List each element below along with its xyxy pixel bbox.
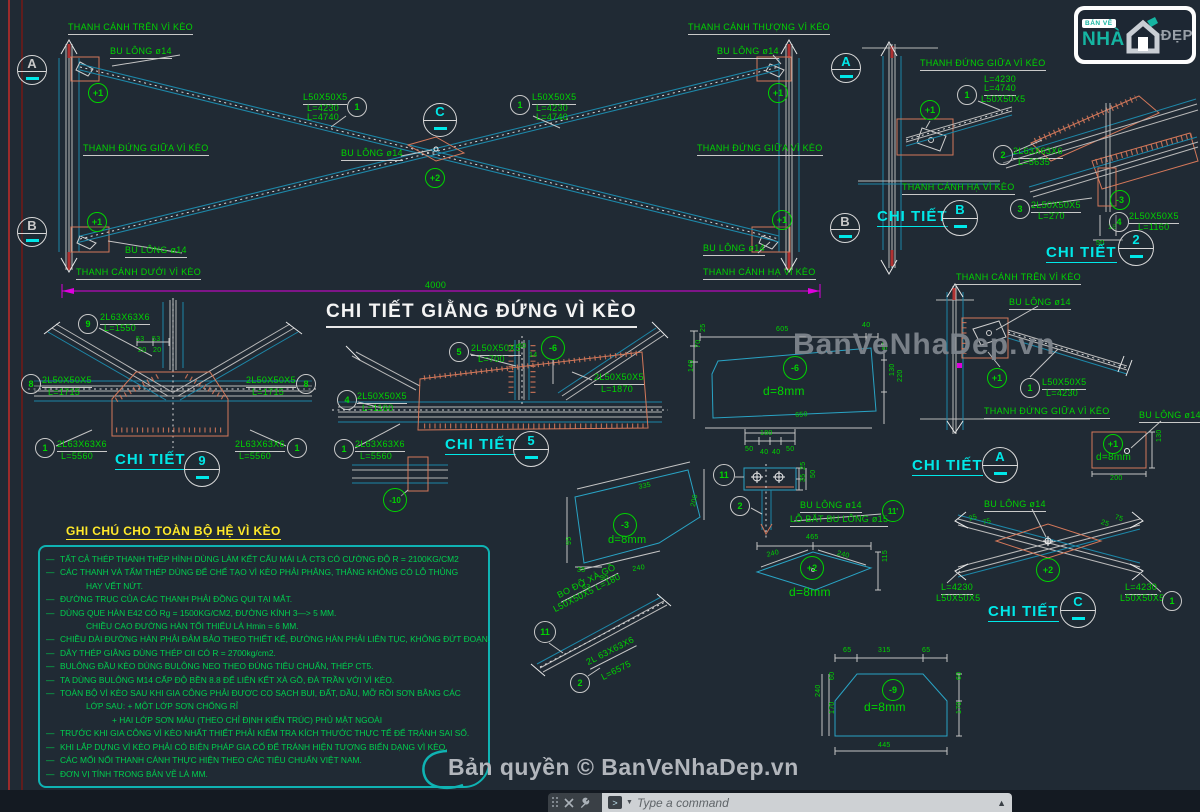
section-letter: B — [943, 201, 977, 218]
callout-bubble: -10 — [383, 488, 407, 512]
callout-bubble: C — [423, 103, 457, 137]
callout-bubble: 4 — [1109, 212, 1129, 232]
cad-label: d=8mm — [763, 385, 805, 397]
cad-label: L50X50X5 — [936, 594, 980, 603]
cad-label: 95 — [566, 537, 573, 545]
note-line: —TOÀN BỘ VÌ KÈO SAU KHI GIA CÔNG PHẢI ĐƯ… — [46, 687, 484, 700]
cad-canvas[interactable]: THANH CÁNH TRÊN VÌ KÈOBU LÔNG ø14L50X50X… — [0, 0, 1200, 812]
callout-bubble: 1 — [957, 85, 977, 105]
logo-line3: ĐẸP — [1161, 27, 1193, 44]
note-line: —DÙNG QUE HÀN E42 CÓ Rg = 1500KG/CM2, ĐƯ… — [46, 607, 484, 620]
section-dash — [1061, 610, 1095, 628]
cad-label: BU LÔNG ø14 — [1009, 298, 1071, 310]
note-line: —ĐƠN VỊ TÍNH TRONG BẢN VẼ LÀ MM. — [46, 768, 484, 781]
cad-label: 40 — [772, 449, 780, 456]
callout-bubble: +1 — [772, 210, 792, 230]
cad-label: 465 — [806, 534, 819, 541]
cad-label: 53 — [136, 336, 144, 343]
cad-label: 445 — [878, 742, 891, 749]
note-line: CHIỀU CAO ĐƯỜNG HÀN TỐI THIỂU LÀ Hmin = … — [46, 620, 484, 633]
cad-label: d=8mm — [864, 701, 906, 713]
notes-block: —TẤT CẢ THÉP THANH THÉP HÌNH DÙNG LÀM KẾ… — [38, 545, 490, 788]
section-letter: B — [18, 218, 46, 233]
cad-label: L50X50X5 — [981, 95, 1025, 104]
cad-label: THANH CÁNH THƯỢNG VÌ KÈO — [688, 23, 830, 35]
cad-label: BU LÔNG ø14 — [800, 501, 862, 513]
section-letter: C — [424, 104, 456, 120]
cad-label: THANH CÁNH HẠ VÌ KÈO — [703, 268, 816, 280]
note-line: —BULÔNG ĐẦU KÈO DÙNG BULÔNG NEO THEO ĐÚN… — [46, 660, 484, 673]
callout-bubble: 11' — [882, 500, 904, 522]
callout-bubble: +1 — [920, 100, 940, 120]
cad-label: L=1715 — [252, 388, 284, 397]
cad-label: THANH CÁNH TRÊN VÌ KÈO — [68, 23, 193, 35]
cad-label: 35 — [577, 567, 585, 574]
callout-bubble: 2 — [1118, 230, 1154, 266]
callout-bubble: +1 — [1103, 434, 1123, 454]
callout-bubble: 5 — [449, 342, 469, 362]
note-line: —TA DÙNG BULÔNG M14 CẤP ĐỘ BỀN 8.8 ĐỂ LI… — [46, 674, 484, 687]
command-bar: > ▼ Type a command ▲ — [548, 793, 1012, 812]
callout-bubble: +2 — [800, 556, 824, 580]
section-letter: 9 — [185, 452, 219, 469]
cad-label: d=8mm — [1096, 453, 1131, 463]
command-bar-tools — [548, 793, 602, 812]
note-line: —KHI LẮP DỰNG VÌ KÈO PHẢI CÓ BIỆN PHÁP G… — [46, 741, 484, 754]
cad-label: 200 — [1110, 475, 1123, 482]
command-input[interactable]: > ▼ Type a command ▲ — [602, 793, 1012, 812]
section-dash — [514, 449, 548, 467]
callout-bubble: -3 — [613, 513, 637, 537]
callout-bubble: 1 — [1162, 591, 1182, 611]
note-line: LỚP SAU: + MỘT LỚP SƠN CHỐNG RỈ — [46, 700, 484, 713]
section-dash — [832, 69, 860, 82]
note-line: —TẤT CẢ THÉP THANH THÉP HÌNH DÙNG LÀM KẾ… — [46, 553, 484, 566]
callout-bubble: 2 — [570, 673, 590, 693]
cad-label: THANH ĐỨNG GIỮA VÌ KÈO — [920, 59, 1046, 71]
cad-label: 60 — [956, 672, 963, 680]
logo-line2: NHÀ — [1082, 29, 1125, 51]
cad-label: 35 — [800, 474, 807, 482]
cad-label: 60 — [518, 343, 526, 350]
cad-label: 65 — [922, 647, 930, 654]
callout-bubble: 9 — [78, 314, 98, 334]
cad-label: CHI TIẾT — [1046, 245, 1117, 263]
note-line: —DÂY THÉP GIẰNG DÙNG THÉP CII CÓ R = 270… — [46, 647, 484, 660]
callout-bubble: 3 — [1010, 199, 1030, 219]
cad-label: L=1870 — [601, 385, 633, 394]
section-dash — [983, 465, 1017, 483]
cad-label: 60 — [829, 672, 836, 680]
note-line: —TRƯỚC KHI GIA CÔNG VÌ KÈO NHẤT THIẾT PH… — [46, 727, 484, 740]
cad-label: THANH CÁNH DƯỚI VÌ KÈO — [76, 268, 201, 280]
section-letter: A — [832, 54, 860, 69]
callout-bubble: 1 — [510, 95, 530, 115]
cad-label: 140 — [688, 359, 695, 372]
callout-bubble: A — [17, 55, 47, 85]
section-dash — [185, 469, 219, 487]
callout-bubble: B — [17, 217, 47, 247]
section-dash — [1119, 248, 1153, 266]
close-icon[interactable] — [564, 798, 574, 808]
callout-bubble: -6 — [541, 336, 565, 360]
cad-label: CHI TIẾT — [877, 209, 948, 227]
copyright: Bản quyền © BanVeNhaDep.vn — [448, 754, 799, 781]
callout-bubble: +1 — [768, 83, 788, 103]
cad-label: BU LÔNG ø14 — [341, 149, 403, 161]
cad-label: BU LÔNG ø14 — [984, 500, 1046, 512]
section-letter: 5 — [514, 432, 548, 449]
cad-label: 50 — [745, 446, 753, 453]
cad-label: 65 — [843, 647, 851, 654]
cad-label: L=5560 — [61, 452, 93, 461]
callout-bubble: +2 — [425, 168, 445, 188]
callout-bubble: 2 — [730, 496, 750, 516]
cad-label: 130 — [889, 363, 896, 376]
cad-label: 170 — [829, 701, 836, 714]
section-dash — [943, 218, 977, 236]
callout-bubble: +2 — [1036, 558, 1060, 582]
section-letter: A — [18, 56, 46, 71]
cad-label: L=5635 — [1018, 158, 1050, 167]
cad-label: THANH ĐỨNG GIỮA VÌ KÈO — [697, 144, 823, 156]
note-line: —CÁC MỐI NỐI THANH CÁNH THỰC HIỆN THEO C… — [46, 754, 484, 767]
callout-bubble: +1 — [987, 368, 1007, 388]
cad-label: 50 — [810, 470, 817, 478]
cad-label: 53 — [152, 336, 160, 343]
cad-label: THANH ĐỨNG GIỮA VÌ KÈO — [984, 407, 1110, 419]
section-letter: C — [1061, 593, 1095, 610]
cad-label: LỖ BẮT BU LÔNG ø15 — [790, 515, 888, 527]
callout-bubble: B — [942, 200, 978, 236]
cad-label: CHI TIẾT — [912, 458, 983, 476]
cad-label: L=5560 — [239, 452, 271, 461]
command-placeholder: Type a command — [637, 796, 993, 810]
callout-bubble: 8 — [296, 374, 316, 394]
cad-label: 605 — [776, 326, 789, 333]
cad-label: 50 — [786, 446, 794, 453]
cad-label: 40 — [760, 449, 768, 456]
callout-bubble: 9 — [184, 451, 220, 487]
cad-label: 650 — [795, 411, 808, 419]
cad-label: L=4740 — [536, 113, 568, 122]
chevron-up-icon[interactable]: ▲ — [997, 798, 1006, 808]
callout-bubble: 4 — [337, 390, 357, 410]
cad-label: L=4740 — [307, 113, 339, 122]
callout-bubble: 5 — [513, 431, 549, 467]
cad-label: L=700 — [478, 355, 505, 364]
drag-handle-icon[interactable] — [552, 797, 559, 808]
cad-label: 25 — [700, 324, 707, 332]
section-dash — [18, 233, 46, 246]
cad-label: L50X50X5 — [1120, 594, 1164, 603]
cad-label: 170 — [956, 701, 963, 714]
cad-label: 180 — [760, 430, 773, 437]
note-line: + HAI LỚP SƠN MÀU (THEO CHỈ ĐỊNH KIẾN TR… — [46, 714, 484, 727]
cad-label: 315 — [878, 647, 891, 654]
note-line: —CHIỀU DÀI ĐƯỜNG HÀN PHẢI ĐẢM BẢO THEO T… — [46, 633, 484, 646]
cad-label: BU LÔNG ø14 — [717, 47, 779, 59]
wrench-icon[interactable] — [579, 797, 590, 808]
section-letter: 2 — [1119, 231, 1153, 248]
note-line: —ĐƯỜNG TRỤC CỦA CÁC THANH PHẢI ĐỒNG QUI … — [46, 593, 484, 606]
cad-label: BU LÔNG ø14 — [110, 47, 172, 59]
cad-label: CHI TIẾT — [115, 452, 186, 470]
callout-bubble: -3 — [1110, 190, 1130, 210]
cad-label: L=4230 — [1046, 389, 1078, 398]
cad-label: 70 — [695, 340, 702, 348]
callout-bubble: 8 — [21, 374, 41, 394]
callout-bubble: +1 — [88, 83, 108, 103]
house-icon — [1125, 15, 1161, 55]
callout-bubble: 11 — [713, 464, 735, 486]
cad-label: 4000 — [425, 281, 446, 290]
callout-bubble: 1 — [1020, 378, 1040, 398]
callout-bubble: 1 — [347, 97, 367, 117]
cad-label: CHI TIẾT — [445, 437, 516, 455]
cad-label: 220 — [897, 369, 904, 382]
cad-label: THANH ĐỨNG GIỮA VÌ KÈO — [83, 144, 209, 156]
notes-heading: GHI CHÚ CHO TOÀN BỘ HỆ VÌ KÈO — [66, 524, 281, 540]
command-prompt-icon: > — [608, 796, 622, 809]
cad-label: 115 — [882, 550, 889, 562]
logo: BẢN VẼ NHÀ ĐẸP — [1074, 6, 1196, 64]
cad-label: 14 — [529, 352, 537, 359]
cad-label: BU LÔNG ø14 — [703, 244, 765, 256]
section-dash — [831, 229, 859, 242]
chevron-down-icon[interactable]: ▼ — [626, 799, 633, 806]
cad-label: 130 — [1156, 429, 1163, 442]
callout-bubble: C — [1060, 592, 1096, 628]
logo-line1: BẢN VẼ — [1082, 19, 1116, 28]
cad-label: 240 — [815, 684, 822, 697]
callout-bubble: 1 — [334, 439, 354, 459]
callout-bubble: +1 — [87, 212, 107, 232]
cad-label: BU LÔNG ø14 — [1139, 411, 1200, 423]
callout-bubble: 1 — [35, 438, 55, 458]
callout-bubble: B — [830, 213, 860, 243]
cad-label: L=1160 — [362, 404, 393, 413]
cad-label: CHI TIẾT — [988, 604, 1059, 622]
section-letter: B — [831, 214, 859, 229]
note-line: —CÁC THANH VÀ TẤM THÉP DÙNG ĐỂ CHẾ TẠO V… — [46, 566, 484, 579]
cad-label: 20 — [153, 347, 161, 354]
section-dash — [424, 120, 456, 137]
cad-label: L=1715 — [48, 388, 80, 397]
cad-label: THANH CÁNH HẠ VÌ KÈO — [902, 183, 1015, 195]
cad-label: L=270 — [1038, 212, 1065, 221]
cad-label: d=8mm — [789, 586, 831, 598]
callout-bubble: A — [982, 447, 1018, 483]
notes-body: —TẤT CẢ THÉP THANH THÉP HÌNH DÙNG LÀM KẾ… — [46, 553, 484, 781]
note-line: HAY VẾT NỨT. — [46, 580, 484, 593]
cad-label: L=5560 — [360, 452, 392, 461]
section-dash — [18, 71, 46, 84]
callout-bubble: -9 — [882, 679, 904, 701]
cad-label: BU LÔNG ø14 — [125, 246, 187, 258]
section-letter: A — [983, 448, 1017, 465]
callout-bubble: 2 — [993, 145, 1013, 165]
drawing-title: CHI TIẾT GIẰNG ĐỨNG VÌ KÈO — [326, 301, 637, 328]
callout-bubble: A — [831, 53, 861, 83]
callout-bubble: 11 — [534, 621, 556, 643]
cad-label: 20 — [138, 347, 146, 354]
cad-label: L=1550 — [104, 324, 136, 333]
callout-bubble: 1 — [287, 438, 307, 458]
cad-label: THANH CÁNH TRÊN VÌ KÈO — [956, 273, 1081, 285]
watermark: BanVeNhaDep.vn — [793, 328, 1055, 362]
cad-label: 25 — [800, 462, 807, 470]
